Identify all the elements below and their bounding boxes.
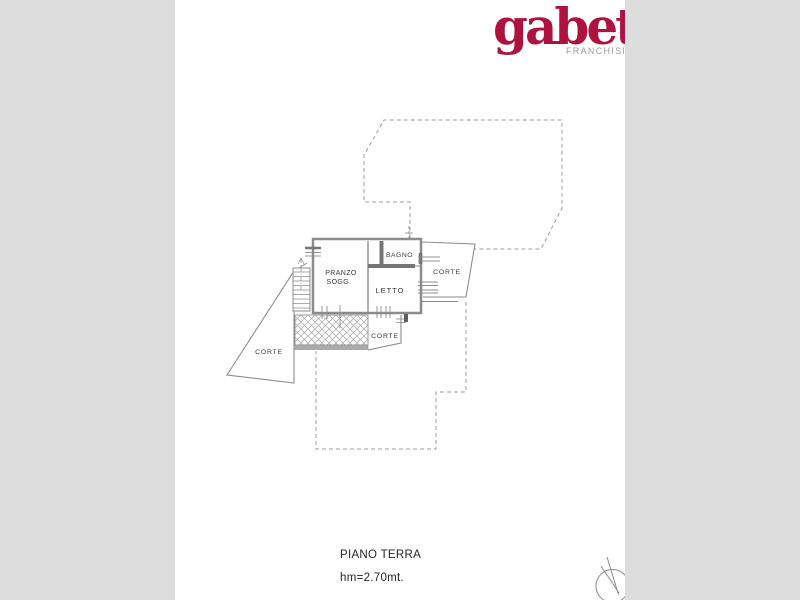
viewer-background: gabetti FRANCHISING [0,0,800,600]
floor-title: PIANO TERRA [340,549,421,561]
upper-court-dashed-boundary [364,120,562,249]
room-label-letto: LETTO [375,286,404,295]
terrace-hatched [294,315,368,350]
north-compass-icon [596,557,625,600]
plan-page: gabetti FRANCHISING [175,0,625,600]
room-label-bagno: BAGNO [386,252,413,259]
room-label-pranzo: PRANZO [325,270,357,277]
court-label-bottom: CORTE [371,333,399,340]
floor-plan-drawing: PRANZO SOGG. BAGNO LETTO CORTE CORTE COR… [175,0,625,600]
room-label-sogg: SOGG. [327,279,352,286]
ceiling-height-note: hm=2.70mt. [340,572,404,584]
court-label-right: CORTE [433,269,461,276]
bottom-court-outline [368,314,408,350]
court-label-left: CORTE [255,349,283,356]
